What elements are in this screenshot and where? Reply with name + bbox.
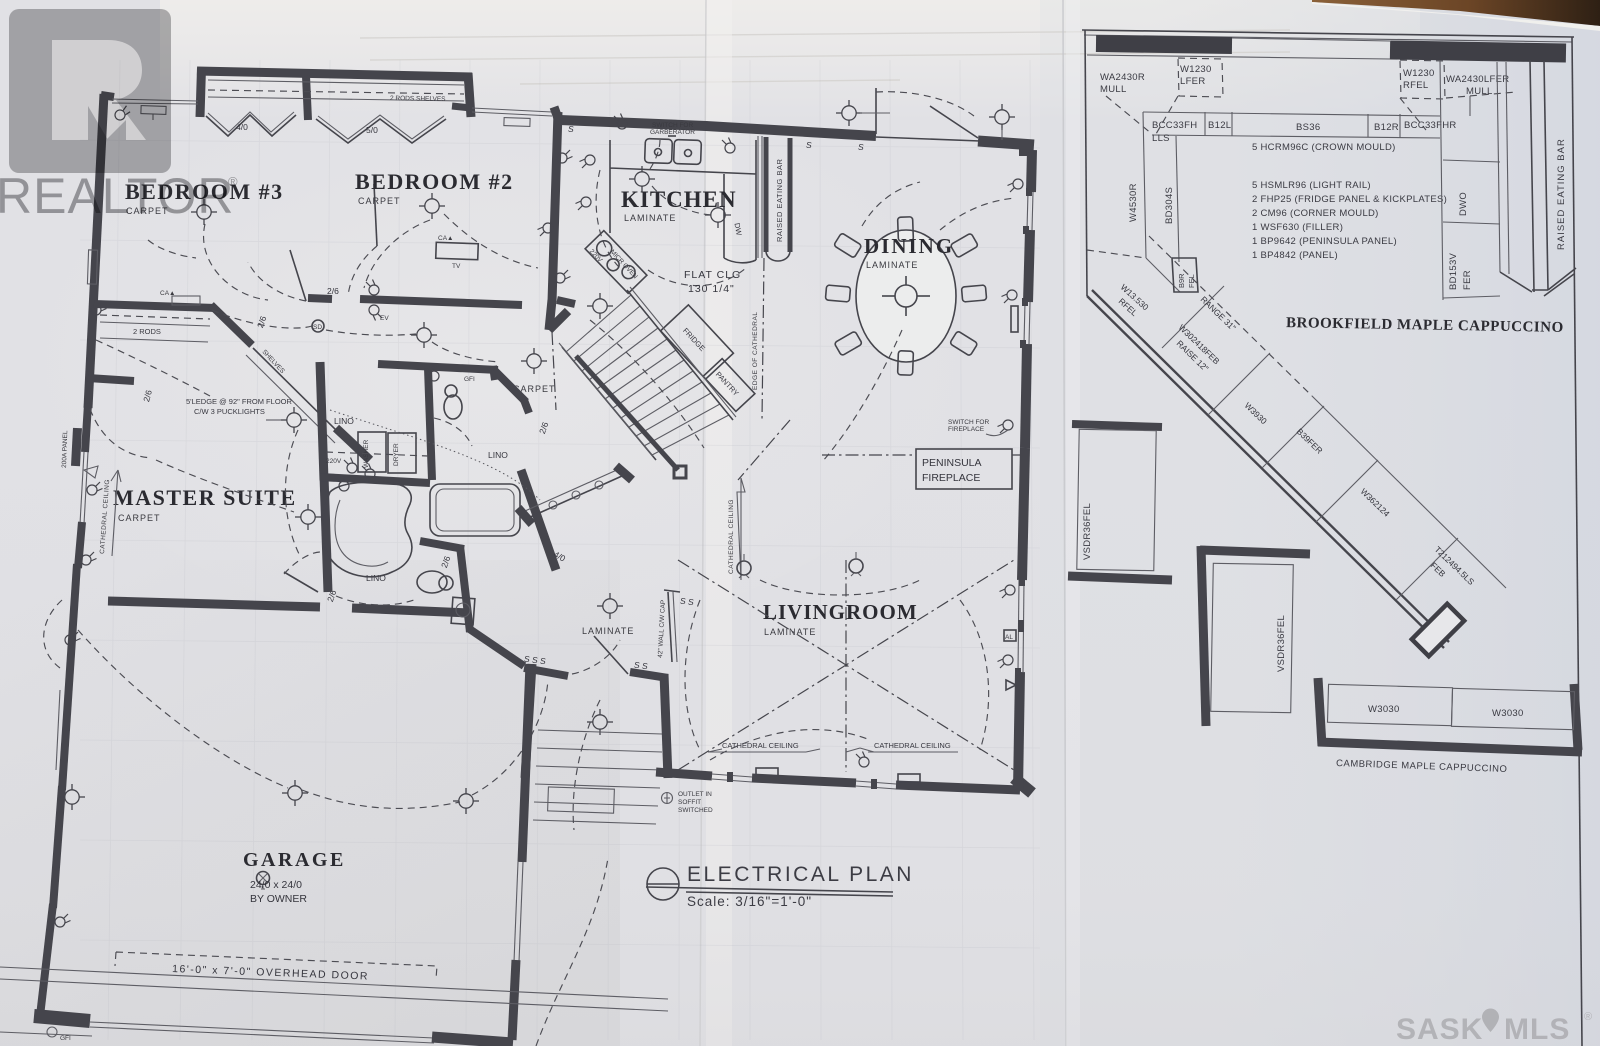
svg-text:RFEL: RFEL bbox=[1403, 80, 1428, 91]
svg-text:B9R: B9R bbox=[1177, 273, 1186, 288]
svg-text:VSDR36FEL: VSDR36FEL bbox=[1276, 615, 1287, 672]
svg-text:S: S bbox=[524, 654, 530, 664]
svg-text:REALTOR: REALTOR bbox=[0, 168, 235, 224]
svg-text:S: S bbox=[688, 597, 694, 607]
svg-text:LAMINATE: LAMINATE bbox=[624, 213, 676, 223]
svg-text:LAMINATE: LAMINATE bbox=[866, 260, 918, 270]
svg-text:1 BP4842 (PANEL): 1 BP4842 (PANEL) bbox=[1252, 250, 1338, 261]
svg-text:EDGE OF CATHEDRAL: EDGE OF CATHEDRAL bbox=[752, 312, 759, 390]
svg-text:ELECTRICAL PLAN: ELECTRICAL PLAN bbox=[687, 863, 914, 886]
svg-text:®: ® bbox=[1584, 1011, 1592, 1023]
svg-text:TV: TV bbox=[452, 263, 461, 270]
svg-text:5/0: 5/0 bbox=[366, 125, 378, 135]
svg-text:CARPET: CARPET bbox=[358, 196, 401, 206]
svg-text:KITCHEN: KITCHEN bbox=[621, 187, 737, 212]
svg-text:MULL: MULL bbox=[1466, 86, 1493, 97]
svg-text:EV: EV bbox=[380, 315, 389, 322]
svg-text:W4530R: W4530R bbox=[1128, 183, 1139, 222]
svg-text:BD153V: BD153V bbox=[1448, 252, 1459, 290]
svg-text:BY OWNER: BY OWNER bbox=[250, 893, 307, 905]
svg-text:SD: SD bbox=[313, 324, 322, 331]
svg-text:GFI: GFI bbox=[60, 1035, 71, 1042]
svg-text:FIREPLACE: FIREPLACE bbox=[922, 472, 980, 484]
svg-text:W1230: W1230 bbox=[1403, 68, 1435, 79]
svg-text:S: S bbox=[642, 661, 648, 671]
svg-text:S: S bbox=[858, 142, 864, 152]
svg-text:BD304S: BD304S bbox=[1164, 187, 1175, 224]
svg-text:PENINSULA: PENINSULA bbox=[922, 457, 982, 469]
svg-text:LINO: LINO bbox=[488, 450, 508, 460]
svg-text:FER: FER bbox=[1462, 270, 1473, 290]
svg-text:2 FHP25 (FRIDGE PANEL & KICKPL: 2 FHP25 (FRIDGE PANEL & KICKPLATES) bbox=[1252, 194, 1447, 205]
svg-text:FIREPLACE: FIREPLACE bbox=[948, 426, 985, 433]
svg-text:MLS: MLS bbox=[1504, 1013, 1570, 1046]
svg-text:5'LEDGE @ 92" FROM FLOOR: 5'LEDGE @ 92" FROM FLOOR bbox=[186, 397, 292, 406]
svg-text:MASTER SUITE: MASTER SUITE bbox=[113, 485, 297, 510]
svg-text:4/0: 4/0 bbox=[236, 122, 248, 132]
svg-text:B12R: B12R bbox=[1374, 122, 1399, 133]
svg-text:S: S bbox=[634, 660, 640, 670]
svg-text:BCC33FHR: BCC33FHR bbox=[1404, 120, 1457, 131]
svg-text:LLS: LLS bbox=[1152, 133, 1170, 144]
svg-text:S: S bbox=[680, 596, 686, 606]
svg-text:LINO: LINO bbox=[334, 416, 354, 426]
svg-text:W1230: W1230 bbox=[1180, 64, 1212, 75]
svg-text:2/6: 2/6 bbox=[327, 286, 339, 296]
svg-text:LAMINATE: LAMINATE bbox=[582, 626, 634, 636]
svg-text:AL: AL bbox=[1005, 634, 1013, 641]
svg-text:W3030: W3030 bbox=[1492, 708, 1524, 719]
svg-text:SOFFIT: SOFFIT bbox=[678, 799, 701, 806]
svg-text:WA2430LFER: WA2430LFER bbox=[1446, 74, 1509, 85]
svg-text:LINO: LINO bbox=[366, 573, 386, 583]
svg-text:CATHEDRAL CEILING: CATHEDRAL CEILING bbox=[728, 499, 735, 574]
svg-text:DINING: DINING bbox=[864, 234, 954, 258]
svg-text:MULL: MULL bbox=[1100, 84, 1127, 95]
svg-text:SWITCHED: SWITCHED bbox=[678, 807, 713, 814]
svg-text:2 CM96 (CORNER MOULD): 2 CM96 (CORNER MOULD) bbox=[1252, 208, 1379, 219]
svg-text:S: S bbox=[532, 655, 538, 665]
svg-text:220V: 220V bbox=[326, 458, 342, 465]
svg-text:SASK: SASK bbox=[1396, 1013, 1483, 1046]
svg-text:B12L: B12L bbox=[1208, 120, 1231, 131]
svg-text:VSDR36FEL: VSDR36FEL bbox=[1082, 503, 1093, 560]
svg-text:1 BP9642 (PENINSULA PANEL): 1 BP9642 (PENINSULA PANEL) bbox=[1252, 236, 1397, 247]
svg-text:S: S bbox=[568, 124, 574, 134]
svg-text:2 RODS SHELVES: 2 RODS SHELVES bbox=[390, 95, 446, 103]
svg-text:W3030: W3030 bbox=[1368, 704, 1400, 715]
svg-text:S: S bbox=[540, 656, 546, 666]
svg-text:200A PANEL: 200A PANEL bbox=[61, 430, 69, 468]
svg-text:GARBERATOR: GARBERATOR bbox=[650, 129, 695, 136]
svg-text:5 HCRM96C (CROWN MOULD): 5 HCRM96C (CROWN MOULD) bbox=[1252, 142, 1396, 153]
svg-text:Scale: 3/16"=1'-0": Scale: 3/16"=1'-0" bbox=[687, 894, 812, 909]
svg-text:SWITCH FOR: SWITCH FOR bbox=[652, 122, 693, 129]
svg-text:LAMINATE: LAMINATE bbox=[764, 627, 816, 637]
svg-text:RAISED EATING BAR: RAISED EATING BAR bbox=[1556, 138, 1567, 250]
svg-text:CATHEDRAL CEILING: CATHEDRAL CEILING bbox=[874, 741, 951, 750]
svg-text:130 1/4": 130 1/4" bbox=[688, 283, 735, 295]
svg-text:2 RODS: 2 RODS bbox=[133, 327, 161, 336]
svg-text:BCC33FH: BCC33FH bbox=[1152, 120, 1197, 131]
svg-text:RAISED EATING BAR: RAISED EATING BAR bbox=[775, 159, 784, 242]
svg-text:S: S bbox=[806, 140, 812, 150]
svg-text:C/W 3 PUCKLIGHTS: C/W 3 PUCKLIGHTS bbox=[194, 407, 265, 416]
svg-text:OUTLET IN: OUTLET IN bbox=[678, 791, 712, 798]
svg-text:GFI: GFI bbox=[464, 376, 475, 383]
svg-text:CATHEDRAL CEILING: CATHEDRAL CEILING bbox=[722, 741, 799, 750]
svg-text:CARPET: CARPET bbox=[118, 513, 161, 523]
svg-text:SWITCH FOR: SWITCH FOR bbox=[948, 419, 989, 426]
svg-text:5 HSMLR96 (LIGHT RAIL): 5 HSMLR96 (LIGHT RAIL) bbox=[1252, 180, 1371, 191]
svg-text:GARAGE: GARAGE bbox=[243, 849, 346, 871]
svg-text:LIVINGROOM: LIVINGROOM bbox=[763, 600, 918, 624]
svg-text:FLAT CLG: FLAT CLG bbox=[684, 269, 741, 281]
svg-text:LFER: LFER bbox=[1180, 76, 1205, 87]
svg-text:24/0 x 24/0: 24/0 x 24/0 bbox=[250, 879, 302, 891]
svg-text:WA2430R: WA2430R bbox=[1100, 72, 1145, 83]
svg-text:®: ® bbox=[228, 174, 238, 189]
svg-text:BEDROOM #2: BEDROOM #2 bbox=[355, 169, 514, 194]
svg-text:DWO: DWO bbox=[1458, 192, 1469, 216]
svg-text:BS36: BS36 bbox=[1296, 122, 1320, 133]
svg-text:1 WSF630 (FILLER): 1 WSF630 (FILLER) bbox=[1252, 222, 1343, 233]
svg-text:CA▲: CA▲ bbox=[438, 235, 453, 242]
